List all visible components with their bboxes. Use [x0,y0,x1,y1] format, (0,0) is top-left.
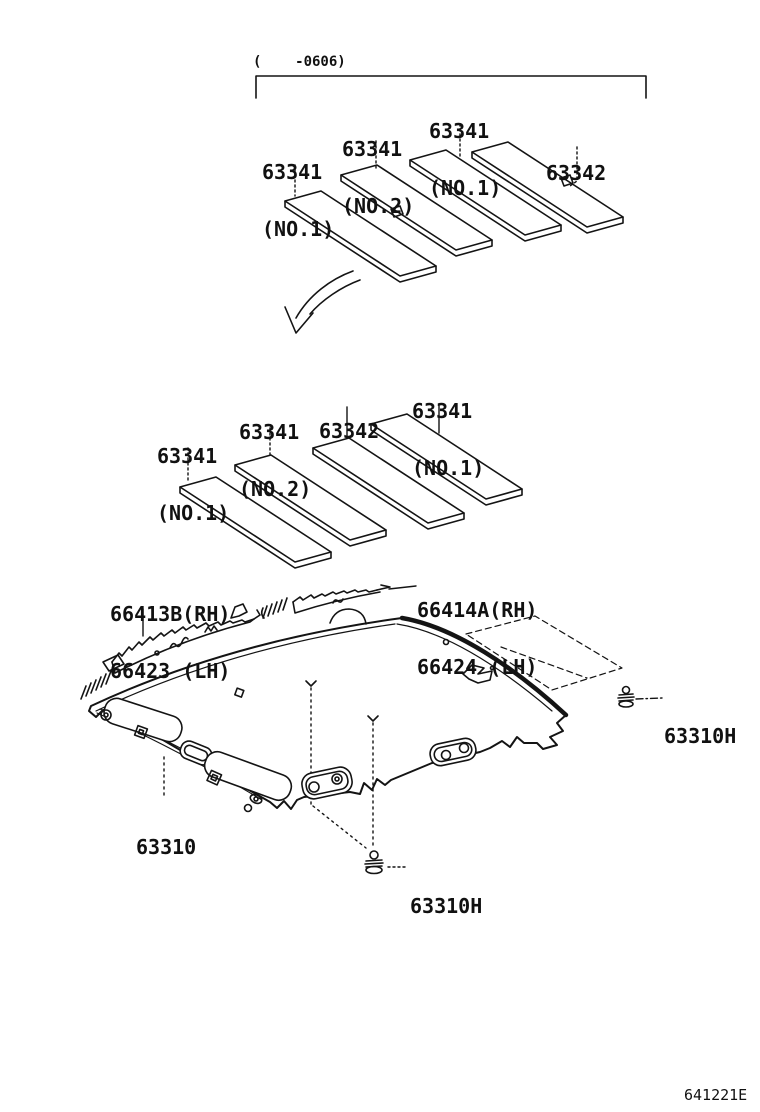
label-63341-no1-right-2: 63341 (NO.1) [412,364,484,516]
label-clip-63310h-bottom: 63310H [410,859,482,954]
label-63342-2: 63342 [319,384,379,479]
label-clip-63310h-right: 63310H [664,689,736,784]
applicability-note: ( -0606) [253,54,346,70]
label-63341-no2-top: 63341 (NO.2) [342,102,414,254]
clip-63310h-right [618,687,634,708]
label-63341-no2-2: 63341 (NO.2) [239,385,311,537]
parts-diagram-page: ( -0606) 63341 (NO.1) 63341 (NO.2) 63341… [0,0,760,1112]
figure-code: 641221E [684,1086,747,1104]
label-63341-no1-left: 63341 (NO.1) [262,125,334,277]
label-headlining-63310: 63310 [136,800,196,895]
curved-arrow-icon [285,271,360,333]
moulding-66414a-66424 [262,585,390,618]
clip-63310h-bottom [365,851,383,874]
label-63341-no1-left-2: 63341 (NO.1) [157,409,229,561]
label-moulding-left: 66413B(RH) 66423 (LH) [110,567,230,719]
label-63341-no1-top: 63341 (NO.1) [429,84,501,236]
label-63342-top: 63342 [546,126,606,221]
label-moulding-right: 66414A(RH) 66424 (LH) [417,563,537,715]
